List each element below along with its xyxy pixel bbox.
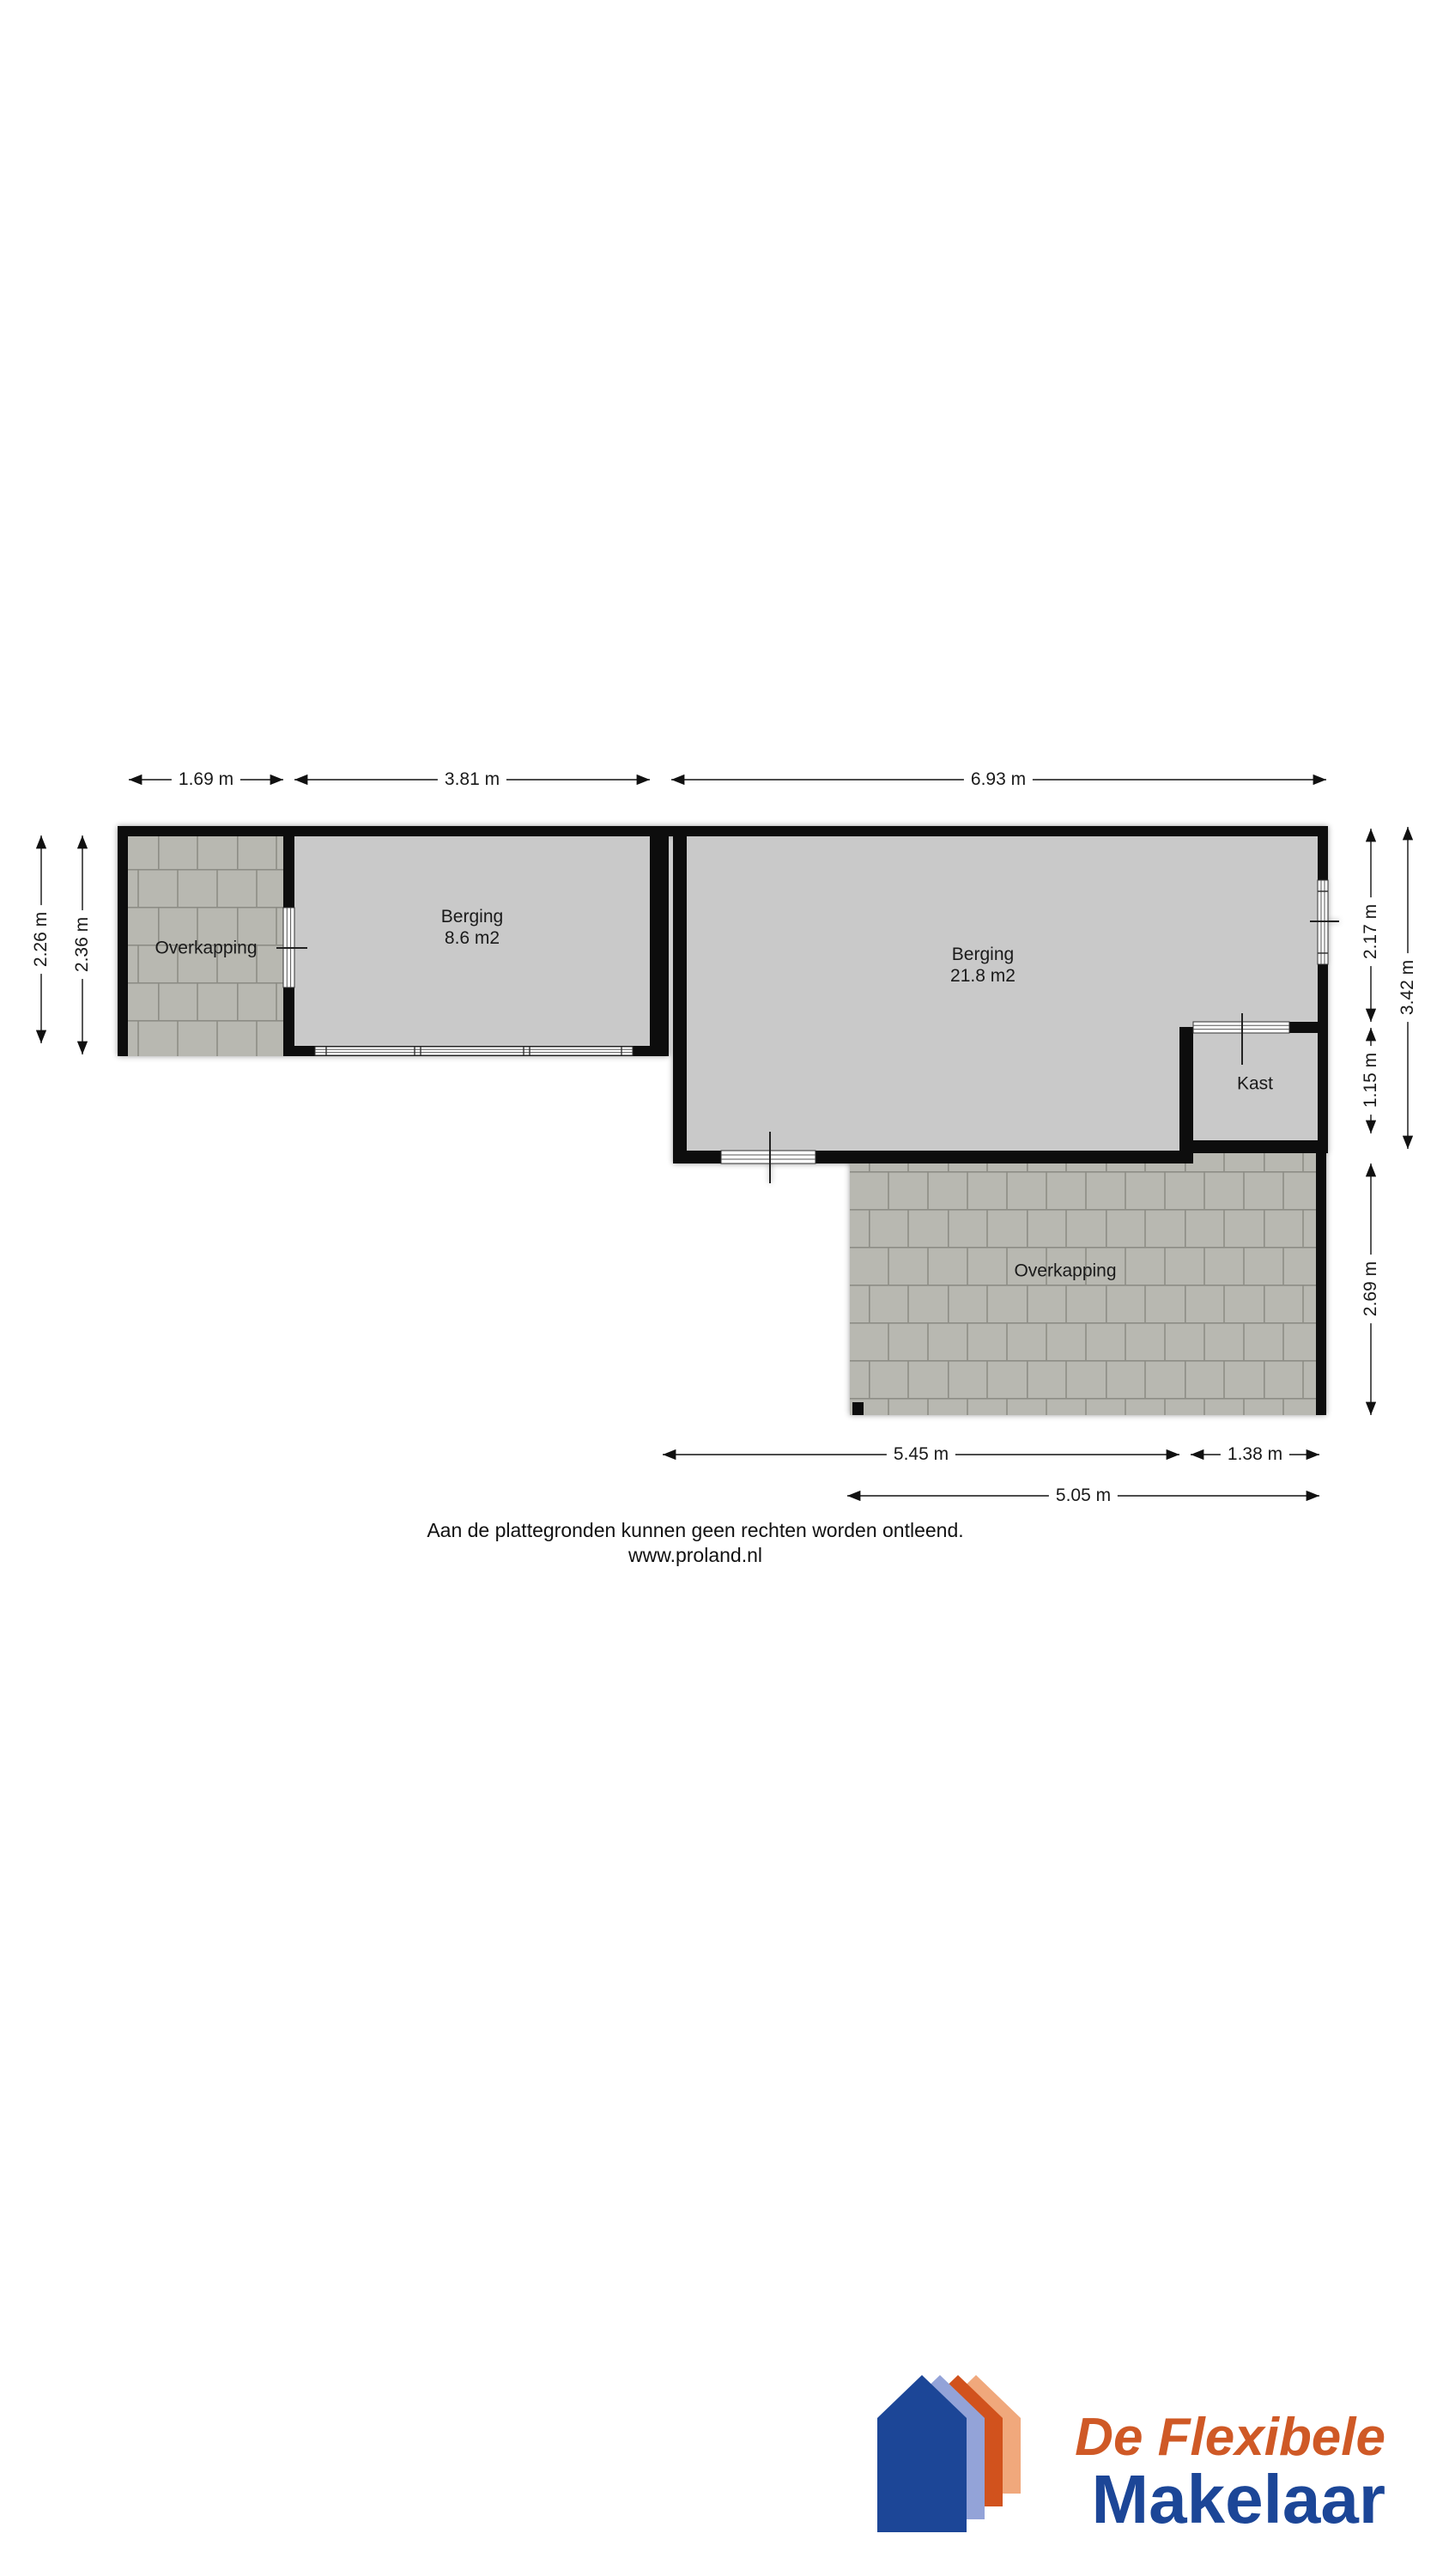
- room-label-overkapping-left: Overkapping: [155, 938, 257, 959]
- room-name-berging-large: Berging: [950, 944, 1016, 965]
- post-overkapping-corner: [852, 1402, 864, 1415]
- dim-label-top-3: 6.93 m: [964, 769, 1033, 790]
- wall-kast-bottom: [1179, 1140, 1328, 1153]
- wall-overkapping-right: [1316, 1153, 1326, 1415]
- room-name-berging-small: Berging: [441, 906, 503, 927]
- page: 1.69 m 3.81 m 6.93 m 2.26 m 2.36 m 2.17 …: [0, 0, 1449, 2576]
- dim-label-bottom-2: 1.38 m: [1221, 1444, 1289, 1465]
- window-berging-large-south: [721, 1151, 815, 1163]
- wall-right-upper: [1318, 826, 1328, 880]
- logo-house-icon: [877, 2375, 1021, 2532]
- room-label-berging-large: Berging 21.8 m2: [950, 944, 1016, 987]
- room-label-berging-small: Berging 8.6 m2: [441, 906, 503, 949]
- dim-label-top-2: 3.81 m: [438, 769, 506, 790]
- floor-plan: [0, 0, 1449, 1631]
- dim-label-top-1: 1.69 m: [172, 769, 240, 790]
- disclaimer-line1: Aan de plattegronden kunnen geen rechten…: [0, 1518, 1391, 1543]
- building: [118, 826, 1339, 1415]
- dim-label-bottom-1: 5.45 m: [887, 1444, 955, 1465]
- logo-tagline: De Flexibele: [1075, 2409, 1385, 2466]
- dim-label-right-total: 3.42 m: [1397, 953, 1418, 1022]
- disclaimer: Aan de plattegronden kunnen geen rechten…: [0, 1518, 1391, 1568]
- wall-berging-small-right: [650, 826, 669, 1056]
- wall-left: [118, 826, 128, 1056]
- logo-name: Makelaar: [1075, 2466, 1385, 2533]
- dim-label-bottom-3: 5.05 m: [1049, 1485, 1118, 1506]
- dim-label-right-kast: 1.15 m: [1361, 1046, 1381, 1115]
- room-label-overkapping-bottom: Overkapping: [1014, 1261, 1116, 1282]
- tile-area-bottom-overkapping: [850, 1153, 1316, 1415]
- room-label-kast: Kast: [1237, 1073, 1273, 1095]
- dim-label-left-inner: 2.26 m: [31, 905, 52, 974]
- dim-label-left-outer: 2.36 m: [72, 910, 93, 979]
- wall-kast-left: [1179, 1027, 1193, 1153]
- dim-label-right-upper: 2.17 m: [1361, 897, 1381, 966]
- wall-top: [118, 826, 1328, 836]
- wall-right-mid: [1318, 964, 1328, 1153]
- disclaimer-website: www.proland.nl: [0, 1543, 1391, 1568]
- room-area-berging-small: 8.6 m2: [441, 927, 503, 949]
- window-berging-small-bottom: [315, 1047, 633, 1055]
- room-area-berging-large: 21.8 m2: [950, 965, 1016, 987]
- logo-text: De Flexibele Makelaar: [1075, 2409, 1385, 2533]
- dim-label-right-lower: 2.69 m: [1361, 1255, 1381, 1323]
- wall-berging-large-left: [673, 826, 687, 1163]
